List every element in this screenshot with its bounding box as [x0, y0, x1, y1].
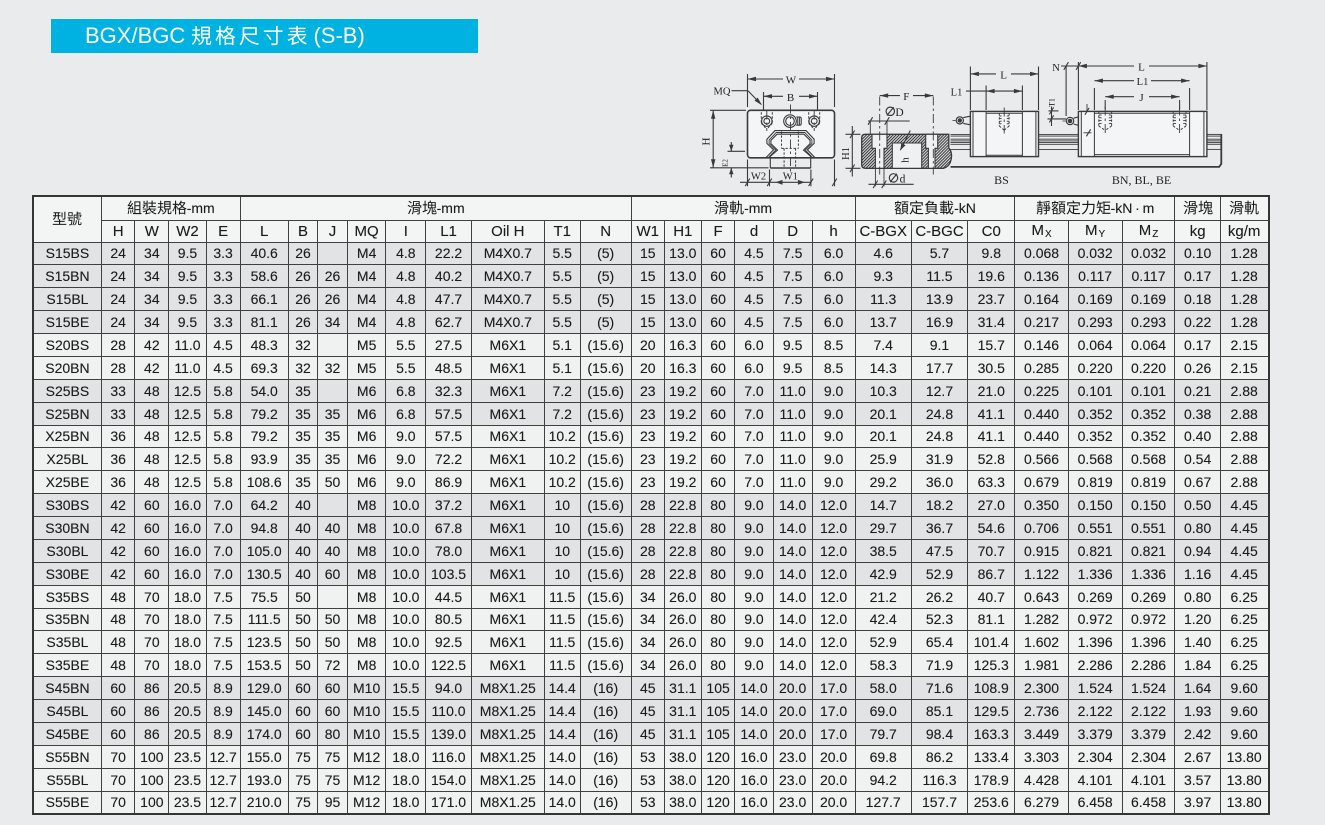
svg-text:BN, BL, BE: BN, BL, BE — [1112, 173, 1171, 187]
svg-text:E2: E2 — [722, 159, 730, 167]
svg-text:N: N — [1052, 63, 1060, 74]
svg-text:H: H — [701, 137, 713, 145]
svg-text:h: h — [900, 157, 912, 163]
svg-text:L: L — [1000, 69, 1007, 81]
svg-text:D: D — [895, 107, 903, 119]
svg-text:W: W — [786, 75, 797, 87]
svg-text:J: J — [1139, 92, 1144, 104]
svg-text:L1: L1 — [951, 88, 963, 99]
svg-text:W2: W2 — [751, 172, 766, 183]
svg-text:MQ: MQ — [714, 87, 731, 98]
svg-text:H1: H1 — [841, 147, 852, 160]
svg-text:L1: L1 — [1137, 77, 1149, 88]
svg-text:F: F — [903, 91, 909, 103]
svg-text:W1: W1 — [783, 172, 798, 183]
svg-text:B: B — [787, 92, 794, 104]
svg-text:BS: BS — [994, 173, 1009, 187]
svg-text:d: d — [900, 174, 906, 186]
svg-text:L: L — [1138, 61, 1145, 73]
svg-text:T1: T1 — [1048, 98, 1057, 107]
